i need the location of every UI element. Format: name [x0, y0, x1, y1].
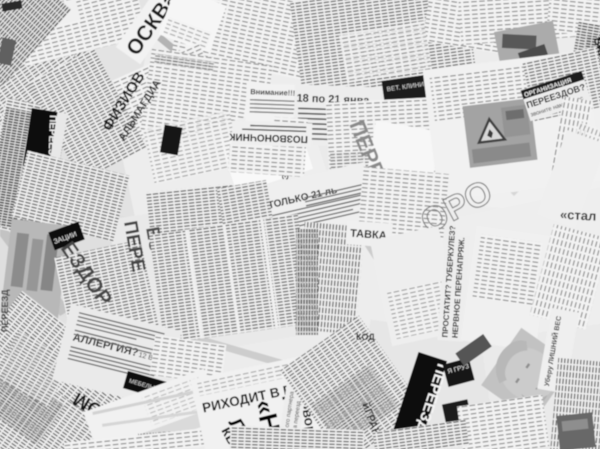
svg-text:КОД: КОД [356, 332, 375, 342]
svg-text:Внимание!!!: Внимание!!! [250, 87, 295, 98]
svg-text:ПЕРЕЕЗД: ПЕРЕЕЗД [0, 289, 10, 332]
svg-text:«стал: «стал [560, 207, 597, 224]
